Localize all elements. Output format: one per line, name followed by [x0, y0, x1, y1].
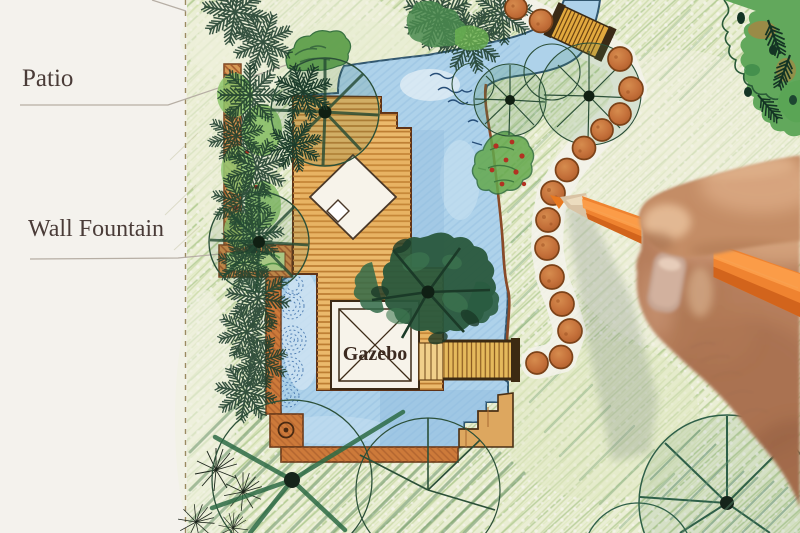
svg-text:Patio: Patio	[22, 65, 73, 92]
svg-text:Wall Fountain: Wall Fountain	[28, 216, 164, 242]
svg-text:Gazebo: Gazebo	[343, 343, 407, 365]
